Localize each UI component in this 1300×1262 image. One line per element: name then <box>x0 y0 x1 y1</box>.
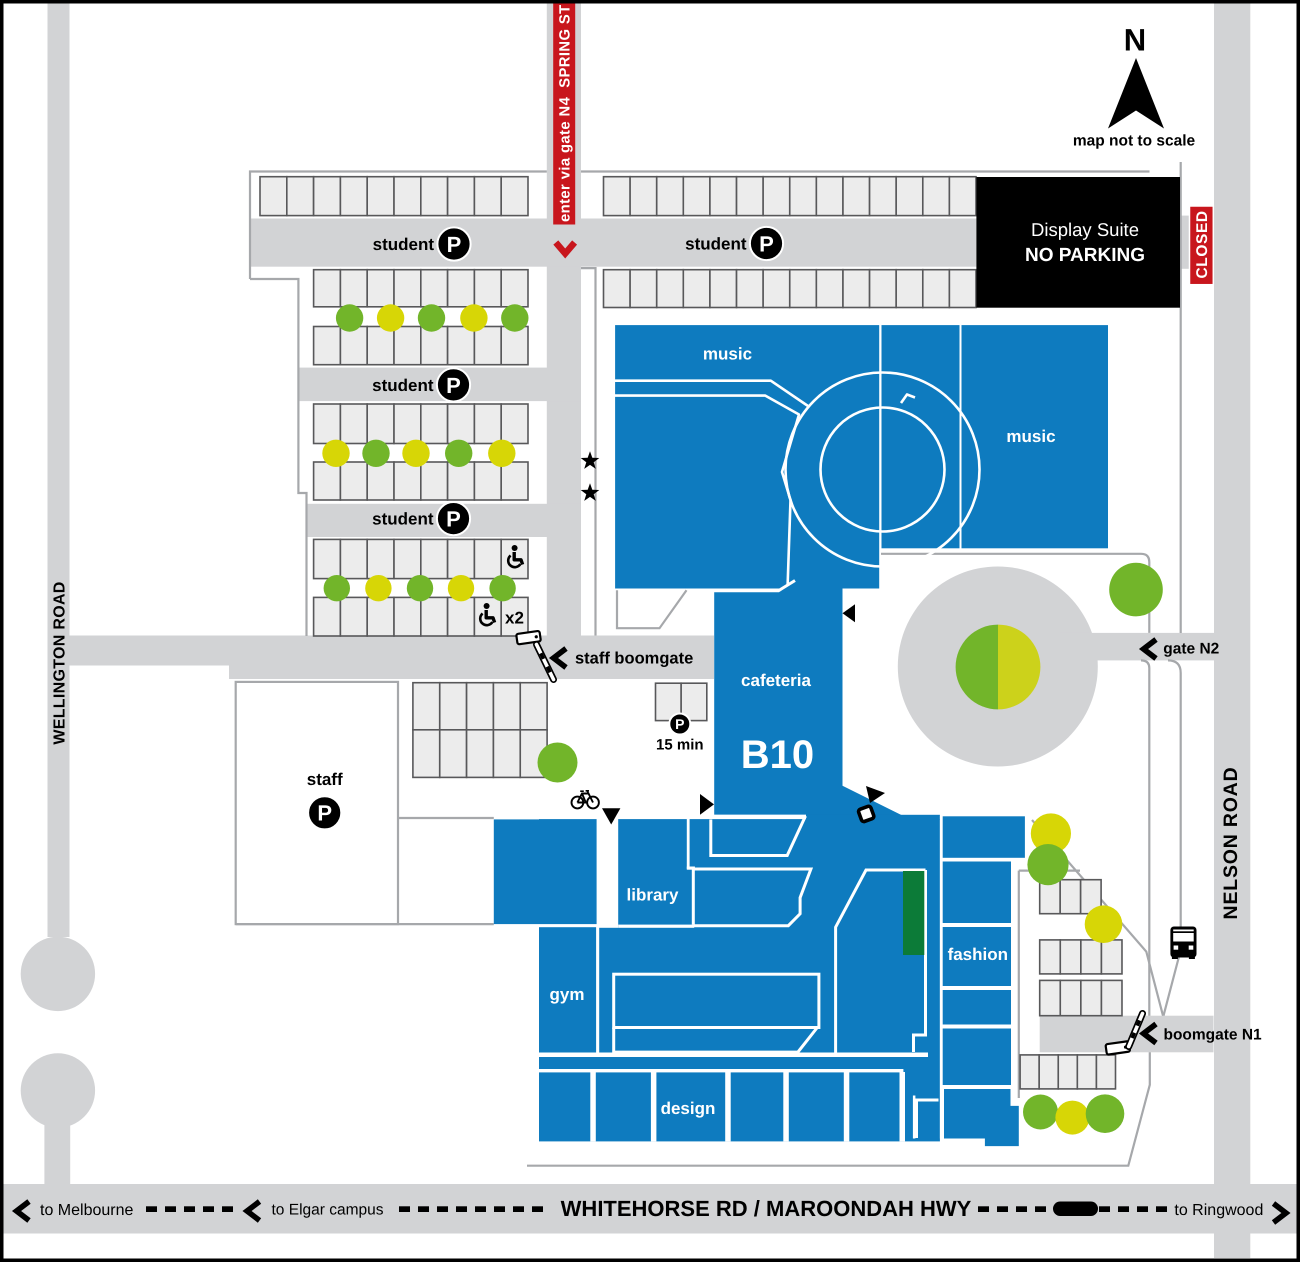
svg-text:WHITEHORSE RD / MAROONDAH HWY: WHITEHORSE RD / MAROONDAH HWY <box>561 1196 972 1221</box>
svg-text:15 min: 15 min <box>656 737 704 754</box>
svg-text:enter via gate N4 SPRING ST: enter via gate N4 SPRING ST <box>558 4 574 222</box>
svg-text:P: P <box>447 232 462 257</box>
svg-text:student: student <box>373 235 435 254</box>
svg-text:cafeteria: cafeteria <box>741 671 811 690</box>
svg-text:x2: x2 <box>505 609 524 628</box>
svg-text:P: P <box>446 507 461 532</box>
svg-text:boomgate N1: boomgate N1 <box>1164 1027 1263 1044</box>
svg-text:B10: B10 <box>741 733 814 777</box>
svg-text:map not to scale: map not to scale <box>1073 133 1196 150</box>
svg-text:gate N2: gate N2 <box>1163 641 1219 658</box>
svg-text:student: student <box>372 376 434 395</box>
svg-text:P: P <box>446 373 461 398</box>
svg-text:student: student <box>372 510 434 529</box>
svg-text:to Melbourne: to Melbourne <box>40 1202 133 1219</box>
svg-text:WELLINGTON ROAD: WELLINGTON ROAD <box>52 581 69 744</box>
svg-text:library: library <box>627 886 680 905</box>
svg-text:P: P <box>759 231 774 256</box>
svg-text:to Ringwood: to Ringwood <box>1174 1202 1263 1219</box>
svg-text:music: music <box>703 345 752 364</box>
svg-text:Display Suite: Display Suite <box>1031 219 1139 240</box>
svg-text:student: student <box>685 235 747 254</box>
svg-text:gym: gym <box>550 985 585 1004</box>
svg-text:NELSON ROAD: NELSON ROAD <box>1220 767 1242 920</box>
svg-text:P: P <box>317 801 332 826</box>
svg-text:N: N <box>1124 23 1146 58</box>
svg-text:design: design <box>661 1099 716 1118</box>
svg-text:NO PARKING: NO PARKING <box>1025 245 1145 266</box>
svg-text:CLOSED: CLOSED <box>1194 210 1211 278</box>
svg-text:to Elgar campus: to Elgar campus <box>272 1202 384 1219</box>
svg-text:music: music <box>1006 427 1055 446</box>
svg-text:fashion: fashion <box>948 945 1008 964</box>
svg-text:staff: staff <box>307 770 343 789</box>
svg-text:staff boomgate: staff boomgate <box>575 650 693 668</box>
svg-text:P: P <box>675 716 684 732</box>
